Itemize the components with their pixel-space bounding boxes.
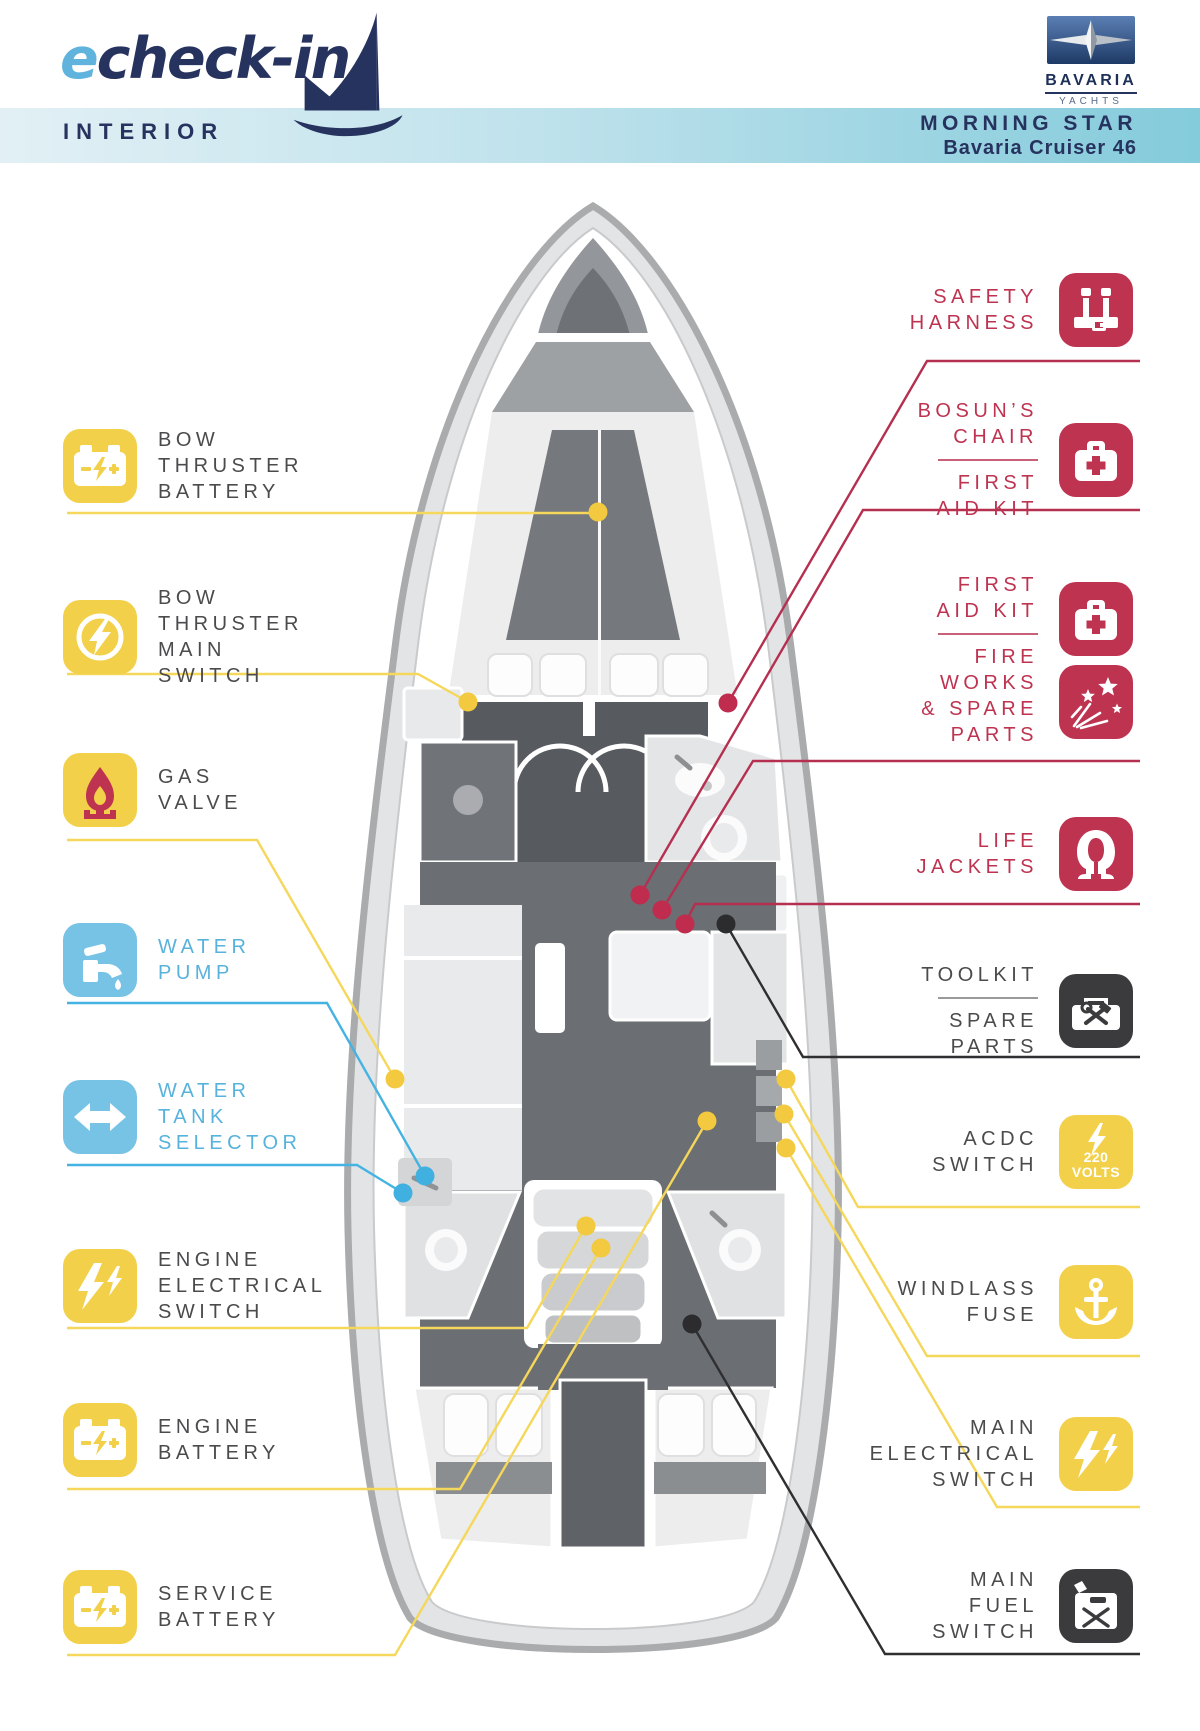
label-text-group: TOOLKIT SPARE PARTS [921,962,1038,1060]
acdc-220-volts-icon: 220 VOLTS [1059,1115,1133,1189]
label-text: WATER PUMP [158,934,251,986]
fireworks-icon [1059,665,1133,739]
label-engine-battery: ENGINE BATTERY [63,1403,280,1477]
label-text: BOW THRUSTER BATTERY [158,427,303,505]
label-bow-thruster-main-switch: BOW THRUSTER MAIN SWITCH [63,585,303,689]
label-water-pump: WATER PUMP [63,923,251,997]
label-text: BOW THRUSTER MAIN SWITCH [158,585,303,689]
double-lightning-icon [63,1249,137,1323]
windlass-anchor-icon [1059,1265,1133,1339]
label-engine-electrical-switch: ENGINE ELECTRICAL SWITCH [63,1247,326,1325]
label-text: GAS VALVE [158,764,242,816]
double-arrow-icon [63,1080,137,1154]
label-first-aid-kit-fireworks: FIRST AID KIT FIRE WORKS & SPARE PARTS [921,572,1133,748]
label-safety-harness: SAFETY HARNESS [910,273,1133,347]
label-text: ENGINE BATTERY [158,1414,280,1466]
label-text: TOOLKIT [921,962,1038,988]
label-acdc-switch: ACDC SWITCH 220 VOLTS [932,1115,1133,1189]
label-bow-thruster-battery: BOW THRUSTER BATTERY [63,427,303,505]
first-aid-icon [1059,582,1133,656]
label-text: FIRST AID KIT [936,470,1038,522]
label-bosuns-chair-first-aid-kit: BOSUN’S CHAIR FIRST AID KIT [918,398,1133,522]
label-text: SERVICE BATTERY [158,1581,280,1633]
label-text: MAIN ELECTRICAL SWITCH [870,1415,1038,1493]
label-text: FIRST AID KIT [936,572,1038,624]
label-gas-valve: GAS VALVE [63,753,242,827]
label-windlass-fuse: WINDLASS FUSE [898,1265,1133,1339]
label-text: FIRE WORKS & SPARE PARTS [921,644,1038,748]
label-text: MAIN FUEL SWITCH [932,1567,1038,1645]
label-text: SAFETY HARNESS [910,284,1038,336]
battery-icon [63,429,137,503]
label-life-jackets: LIFE JACKETS [916,817,1133,891]
label-water-tank-selector: WATER TANK SELECTOR [63,1078,301,1156]
safety-harness-icon [1059,273,1133,347]
label-text-group: FIRST AID KIT FIRE WORKS & SPARE PARTS [921,572,1038,748]
group-divider [938,633,1038,635]
label-text-group: BOSUN’S CHAIR FIRST AID KIT [918,398,1038,522]
label-text: LIFE JACKETS [916,828,1038,880]
fuel-can-icon [1059,1569,1133,1643]
label-service-battery: SERVICE BATTERY [63,1570,280,1644]
faucet-icon [63,923,137,997]
label-text: WATER TANK SELECTOR [158,1078,301,1156]
acdc-volts-text: 220 VOLTS [1059,1150,1133,1180]
gas-flame-icon [63,753,137,827]
toolkit-icon [1059,974,1133,1048]
label-toolkit-spare-parts: TOOLKIT SPARE PARTS [921,962,1133,1060]
icon-group [1059,582,1133,739]
label-text: ENGINE ELECTRICAL SWITCH [158,1247,326,1325]
double-lightning-icon [1059,1417,1133,1491]
group-divider [938,459,1038,461]
life-jacket-icon [1059,817,1133,891]
label-main-electrical-switch: MAIN ELECTRICAL SWITCH [870,1415,1133,1493]
group-divider [938,997,1038,999]
first-aid-icon [1059,423,1133,497]
lightning-circle-icon [63,600,137,674]
echeckin-interior-infographic: echeck-in INTERIOR MORNING STAR Bavaria … [0,0,1200,1731]
battery-icon [63,1403,137,1477]
label-text: ACDC SWITCH [932,1126,1038,1178]
label-text: WINDLASS FUSE [898,1276,1038,1328]
label-text: BOSUN’S CHAIR [918,398,1038,450]
battery-icon [63,1570,137,1644]
label-text: SPARE PARTS [949,1008,1038,1060]
label-main-fuel-switch: MAIN FUEL SWITCH [932,1567,1133,1645]
